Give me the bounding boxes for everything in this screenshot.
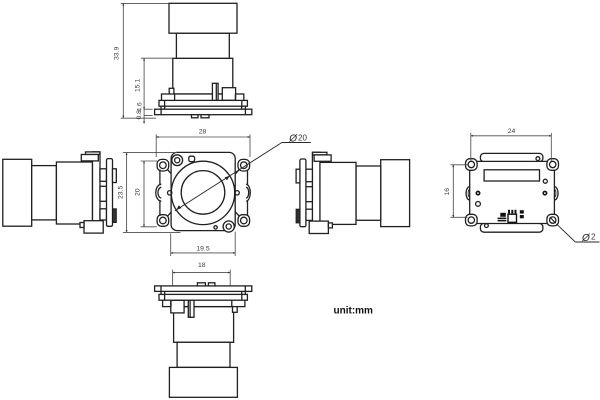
svg-text:28: 28 [199, 129, 207, 136]
svg-text:23.5: 23.5 [117, 186, 124, 199]
svg-text:18: 18 [198, 262, 206, 269]
svg-text:0.8: 0.8 [136, 110, 143, 120]
svg-text:Ø: Ø [581, 233, 591, 244]
svg-text:unit:mm: unit:mm [334, 305, 374, 316]
svg-text:15.1: 15.1 [135, 79, 142, 92]
svg-text:19.5: 19.5 [196, 246, 209, 253]
svg-text:33.9: 33.9 [114, 47, 121, 60]
svg-text:20: 20 [135, 188, 142, 196]
svg-text:2: 2 [591, 233, 596, 242]
svg-text:Ø: Ø [288, 133, 298, 144]
svg-text:24: 24 [508, 128, 516, 135]
svg-text:16: 16 [444, 188, 451, 196]
svg-text:20: 20 [298, 133, 307, 142]
